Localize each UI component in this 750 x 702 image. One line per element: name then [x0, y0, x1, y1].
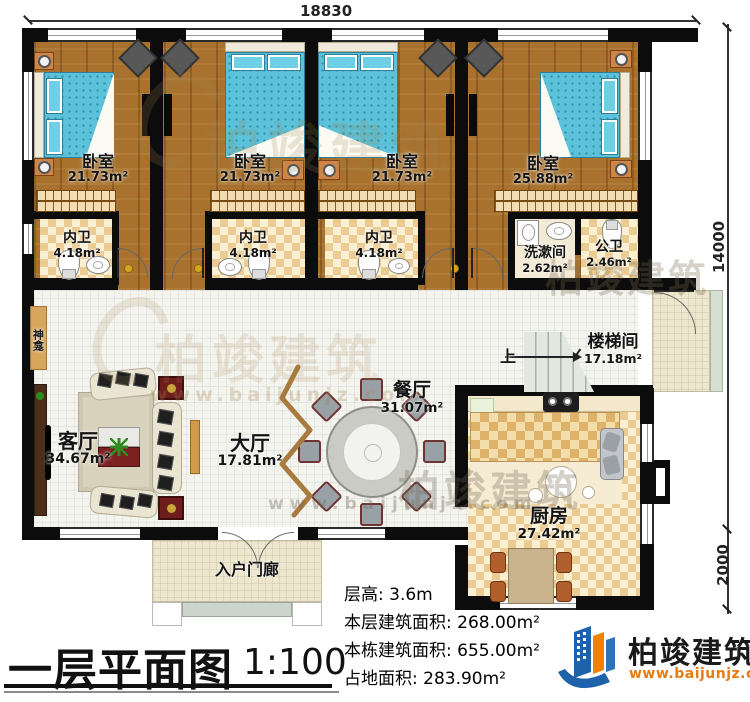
sofa-cushion — [99, 493, 115, 508]
wall-bath-top — [205, 211, 305, 219]
room-area: 27.42m² — [509, 527, 589, 542]
title-underline-thin — [4, 691, 339, 693]
pillow — [47, 120, 62, 154]
info-footprint-area: 占地面积: 283.90m² — [344, 664, 506, 689]
room-name: 大厅 — [195, 432, 305, 454]
room-label-washroom: 洗漱间 2.62m² — [510, 246, 580, 275]
info-value: 655.00m² — [457, 641, 540, 661]
room-name: 客厅 — [26, 430, 130, 452]
dining-chair — [423, 440, 446, 463]
window — [640, 424, 654, 462]
info-value: 268.00m² — [457, 613, 540, 633]
info-floor-height: 层高: 3.6m — [344, 580, 433, 605]
wall-kitchen-left-lower — [455, 545, 468, 600]
side-table — [158, 496, 184, 520]
room-name: 内卫 — [46, 231, 108, 247]
closet — [318, 190, 416, 212]
window — [638, 72, 652, 160]
prep-bowl — [582, 486, 595, 499]
room-name: 楼梯间 — [575, 333, 651, 352]
washing-machine — [517, 220, 539, 246]
title-underline — [4, 684, 332, 688]
pillow — [232, 55, 264, 70]
room-name: 卧室 — [503, 155, 583, 173]
sofa-cushion — [157, 431, 174, 447]
sofa-cushion — [157, 475, 174, 491]
dimension-depth-main: 14000 — [710, 217, 728, 277]
window — [332, 28, 424, 42]
room-area: 4.18m² — [222, 247, 284, 260]
pillow — [361, 55, 393, 70]
info-value: 3.6m — [389, 585, 433, 605]
room-name: 卧室 — [58, 153, 138, 171]
kitchen-table — [508, 548, 554, 604]
wall-bottom-seg — [140, 527, 218, 540]
door-leaf — [452, 248, 454, 278]
dimension-line-right — [727, 24, 729, 614]
pillow — [268, 55, 300, 70]
lamp-icon — [323, 164, 336, 177]
closet — [210, 190, 305, 212]
kitchen-island — [470, 412, 620, 462]
lamp-icon — [615, 163, 628, 176]
room-label-bedroom3: 卧室 21.73m² — [362, 153, 442, 185]
sofa-cushion — [137, 493, 153, 508]
room-area: 17.18m² — [575, 352, 651, 366]
wall-br3-br4 — [455, 42, 468, 290]
room-label-dining: 餐厅 31.07m² — [362, 380, 462, 416]
lazy-susan — [364, 444, 382, 462]
room-label-bedroom1: 卧室 21.73m² — [58, 153, 138, 185]
dimension-width: 18830 — [300, 2, 352, 20]
floor-plan: 柏竣建筑 柏竣建筑 www.baijunjz.com 柏竣建筑 柏竣建筑 www… — [0, 0, 750, 702]
info-floor-area: 本层建筑面积: 268.00m² — [344, 608, 540, 633]
sink — [546, 222, 572, 240]
wall-bath-side — [205, 211, 212, 285]
room-label-stairwell: 楼梯间 17.18m² — [575, 333, 651, 366]
burner-icon — [563, 397, 572, 406]
wall-bath-top — [318, 211, 418, 219]
room-name: 卧室 — [362, 153, 442, 171]
plan-title: 一层平面图 — [8, 634, 233, 698]
room-area: 17.81m² — [195, 454, 305, 470]
stairs-up-label: 上 — [497, 348, 519, 366]
kitchen-chair — [490, 552, 506, 573]
medallion-icon — [167, 504, 176, 513]
room-label-public-wc: 公卫 2.46m² — [580, 240, 638, 269]
room-label-ensuite1: 内卫 4.18m² — [46, 231, 108, 260]
window — [22, 224, 34, 254]
prep-bowl — [528, 488, 543, 503]
room-area: 4.18m² — [348, 247, 410, 260]
kitchen-chair — [556, 581, 572, 602]
closet — [36, 190, 116, 212]
wall-tv — [446, 94, 454, 136]
room-area: 4.18m² — [46, 247, 108, 260]
side-table — [158, 376, 184, 400]
pillow — [602, 120, 617, 154]
prep-bowl — [545, 466, 577, 498]
door-leaf — [202, 248, 204, 278]
kitchen-chair — [490, 581, 506, 602]
nightstand — [34, 52, 54, 70]
nightstand — [610, 50, 632, 68]
info-label: 占地面积: — [344, 669, 418, 689]
lamp-icon — [38, 161, 51, 174]
medallion-icon — [167, 384, 176, 393]
wall-bath-bottom — [205, 278, 305, 290]
burner-icon — [548, 397, 557, 406]
info-label: 层高: — [344, 585, 384, 605]
room-label-living: 客厅 34.67m² — [26, 430, 130, 468]
pillow — [325, 55, 357, 70]
room-area: 21.73m² — [210, 171, 290, 186]
room-name: 内卫 — [222, 231, 284, 247]
nightstand — [34, 158, 54, 176]
info-building-area: 本栋建筑面积: 655.00m² — [344, 636, 540, 661]
room-label-bedroom2: 卧室 21.73m² — [210, 153, 290, 185]
window — [60, 527, 140, 540]
company-website: www.baijunjz.com — [629, 666, 750, 682]
room-label-ensuite3: 内卫 4.18m² — [348, 231, 410, 260]
nightstand — [318, 160, 340, 180]
dimension-depth-porch: 2000 — [714, 535, 732, 595]
room-label-hall: 大厅 17.81m² — [195, 432, 305, 470]
plant-icon — [36, 392, 44, 400]
room-area: 34.67m² — [26, 452, 130, 468]
info-label: 本层建筑面积: — [344, 613, 452, 633]
plan-scale: 1:100 — [243, 642, 347, 683]
sink — [388, 258, 410, 274]
room-name: 内卫 — [348, 231, 410, 247]
wall-bath-bottom — [508, 278, 638, 290]
porch-step — [182, 602, 292, 617]
kitchen-flue-inner — [656, 468, 665, 496]
sofa-cushion — [157, 454, 174, 470]
bed-headboard — [318, 42, 398, 52]
side-porch-step — [710, 290, 723, 392]
nightstand — [610, 160, 632, 178]
room-area: 21.73m² — [58, 171, 138, 186]
room-name: 公卫 — [580, 240, 638, 256]
bed-headboard — [620, 72, 630, 158]
window — [22, 72, 34, 160]
wall-br2-br3 — [305, 42, 318, 290]
pillow — [602, 79, 617, 113]
wall-bottom-seg — [22, 527, 60, 540]
kitchen-chair — [556, 552, 572, 573]
dimension-line-top — [28, 20, 696, 22]
room-name: 卧室 — [210, 153, 290, 171]
wall-bottom-seg — [298, 527, 318, 540]
wall-bath-top — [22, 211, 118, 219]
room-area: 2.46m² — [580, 256, 638, 269]
sofa-cushion — [119, 495, 135, 510]
bed-headboard — [34, 72, 44, 158]
room-label-entry-porch: 入户门廊 — [192, 561, 302, 579]
pillow — [47, 79, 62, 113]
info-value: 283.90m² — [423, 669, 506, 689]
room-label-kitchen: 厨房 27.42m² — [509, 506, 589, 542]
window — [498, 28, 608, 42]
sink — [218, 258, 242, 276]
info-label: 本栋建筑面积: — [344, 641, 452, 661]
wall-side-porch-top — [630, 278, 696, 290]
window — [640, 504, 654, 544]
sofa-cushion — [157, 409, 174, 425]
window — [318, 527, 385, 540]
lamp-icon — [615, 53, 628, 66]
room-name: 餐厅 — [362, 380, 462, 401]
window — [48, 28, 136, 42]
room-area: 25.88m² — [503, 173, 583, 188]
room-area: 31.07m² — [362, 401, 462, 416]
room-label-bedroom4: 卧室 25.88m² — [503, 155, 583, 187]
room-label-shrine: 神龛 — [31, 316, 43, 364]
room-label-ensuite2: 内卫 4.18m² — [222, 231, 284, 260]
porch-step-block-left — [152, 602, 182, 626]
room-name: 厨房 — [509, 506, 589, 527]
porch-step-block-right — [292, 602, 322, 626]
room-area: 21.73m² — [362, 171, 442, 186]
room-name: 洗漱间 — [510, 246, 580, 262]
company-logo-icon — [552, 620, 626, 700]
lamp-icon — [38, 55, 51, 68]
room-area: 2.62m² — [510, 262, 580, 275]
window — [186, 28, 282, 42]
wall-bottom-seg — [385, 527, 468, 540]
dining-chair — [360, 503, 383, 526]
bed-headboard — [225, 42, 305, 52]
wall-bath-top — [508, 211, 638, 219]
wall-tv — [469, 94, 477, 136]
closet — [494, 190, 638, 212]
